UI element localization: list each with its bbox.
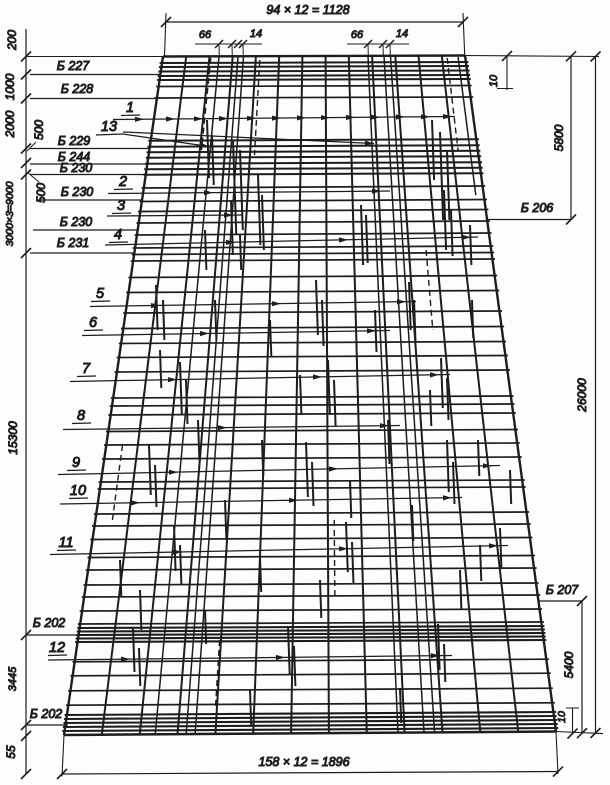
svg-text:55: 55 <box>4 745 18 759</box>
svg-text:3445: 3445 <box>7 666 19 691</box>
svg-text:Б 230: Б 230 <box>60 161 93 175</box>
svg-text:8: 8 <box>77 408 85 424</box>
svg-text:200: 200 <box>5 30 19 51</box>
svg-text:Б 206: Б 206 <box>521 201 554 215</box>
svg-text:Б 202: Б 202 <box>33 616 66 630</box>
svg-text:Б 207: Б 207 <box>546 583 580 597</box>
svg-text:10: 10 <box>556 711 568 723</box>
svg-text:11: 11 <box>58 535 73 551</box>
svg-text:10: 10 <box>488 74 500 87</box>
svg-text:14: 14 <box>396 28 408 40</box>
svg-text:94 × 12 = 1128: 94 × 12 = 1128 <box>266 3 349 17</box>
svg-text:2000: 2000 <box>3 110 17 138</box>
svg-text:12: 12 <box>49 640 65 656</box>
svg-text:14: 14 <box>250 28 262 40</box>
svg-text:13: 13 <box>101 119 117 135</box>
svg-text:Б 230: Б 230 <box>61 185 94 199</box>
svg-text:Б 228: Б 228 <box>61 82 94 96</box>
svg-text:26000: 26000 <box>575 378 589 413</box>
svg-text:500: 500 <box>32 120 46 140</box>
svg-text:1: 1 <box>126 100 134 116</box>
svg-text:10: 10 <box>70 483 86 499</box>
svg-text:66: 66 <box>351 29 364 41</box>
svg-text:1000: 1000 <box>3 73 17 100</box>
svg-text:2: 2 <box>118 174 127 190</box>
svg-text:Б 202: Б 202 <box>30 707 63 721</box>
svg-text:3000×3=9000: 3000×3=9000 <box>4 181 16 246</box>
svg-text:158 × 12 = 1896: 158 × 12 = 1896 <box>258 755 349 769</box>
svg-text:15300: 15300 <box>6 421 20 455</box>
svg-text:5: 5 <box>96 286 105 302</box>
svg-text:9: 9 <box>72 455 80 471</box>
svg-text:6: 6 <box>89 315 98 331</box>
svg-text:Б 229: Б 229 <box>58 134 91 148</box>
svg-text:500: 500 <box>34 183 48 203</box>
svg-text:5800: 5800 <box>552 124 566 151</box>
svg-text:5400: 5400 <box>562 651 576 678</box>
svg-text:Б 230: Б 230 <box>60 215 93 229</box>
svg-text:66: 66 <box>199 29 212 41</box>
svg-text:Б 231: Б 231 <box>57 236 89 250</box>
svg-text:7: 7 <box>82 361 91 377</box>
svg-text:Б 227: Б 227 <box>57 59 91 73</box>
